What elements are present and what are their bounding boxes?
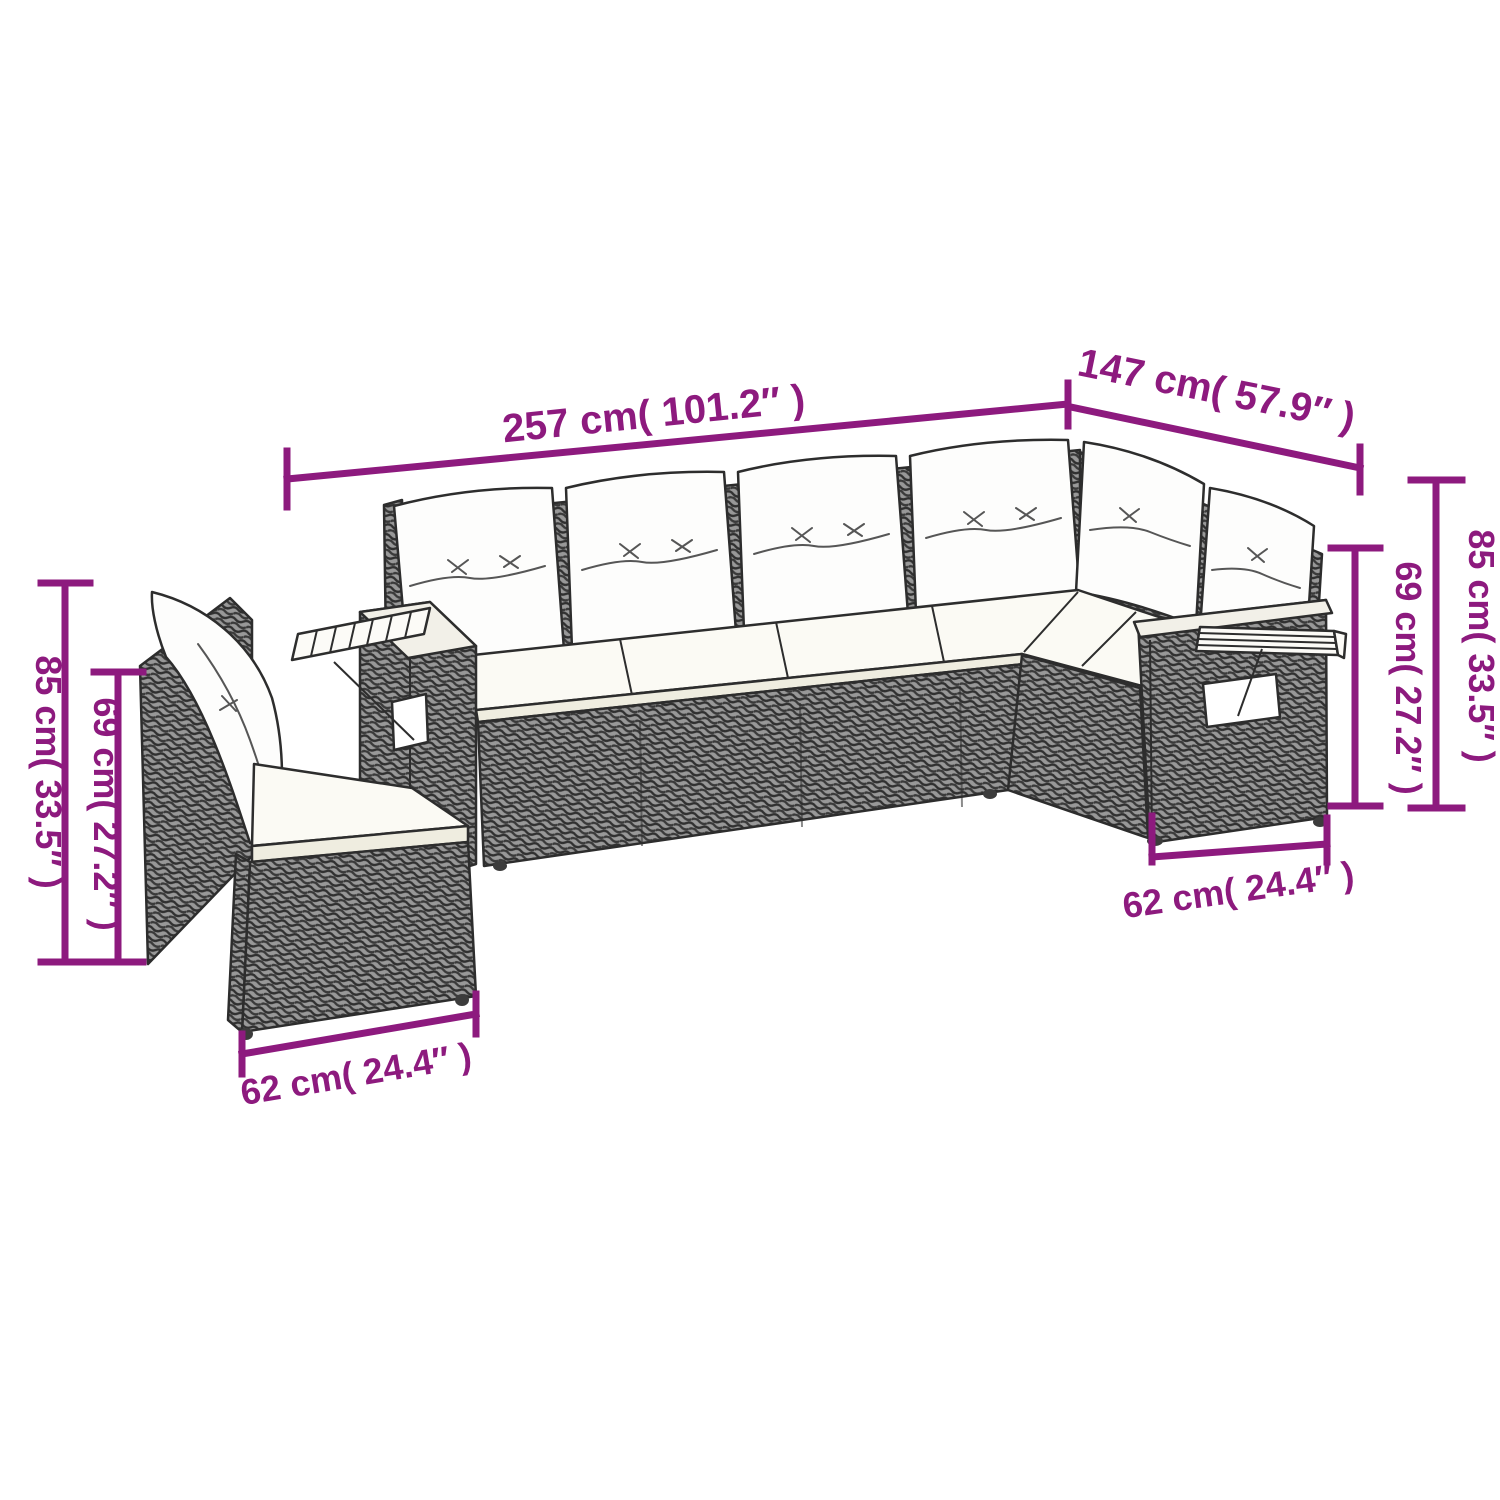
chair-rattan-base bbox=[242, 842, 476, 1032]
dim-right-back-height: 69 cm( 27.2″ ) bbox=[1331, 548, 1429, 806]
sofa-foot bbox=[493, 861, 507, 871]
dim-right-total-height-label: 85 cm( 33.5″ ) bbox=[1461, 529, 1500, 762]
left-arm-cutout bbox=[392, 694, 428, 750]
dim-total-length-label: 257 cm( 101.2″ ) bbox=[500, 377, 807, 451]
back-cushion bbox=[566, 472, 736, 649]
back-cushion bbox=[910, 440, 1080, 613]
dim-left-back-height-label: 69 cm( 27.2″ ) bbox=[86, 697, 127, 930]
dim-left-total-height-label: 85 cm( 33.5″ ) bbox=[28, 655, 69, 888]
diagram-canvas: 257 cm( 101.2″ ) 147 cm( 57.9″ ) 85 cm( … bbox=[0, 0, 1500, 1500]
dim-right-back-height-line bbox=[1331, 548, 1380, 806]
dim-right-module-width: 62 cm( 24.4″ ) bbox=[1120, 816, 1357, 926]
back-cushion bbox=[738, 456, 908, 631]
dim-left-back-height: 69 cm( 27.2″ ) bbox=[86, 672, 143, 962]
dim-left-total-height: 85 cm( 33.5″ ) bbox=[28, 583, 90, 962]
chair-foot bbox=[455, 994, 469, 1006]
dim-right-back-height-label: 69 cm( 27.2″ ) bbox=[1388, 561, 1429, 794]
sofa-foot bbox=[983, 789, 997, 799]
right-arm-cutout bbox=[1203, 674, 1280, 727]
dimension-diagram: 257 cm( 101.2″ ) 147 cm( 57.9″ ) 85 cm( … bbox=[0, 0, 1500, 1500]
dim-total-depth-label: 147 cm( 57.9″ ) bbox=[1074, 341, 1359, 440]
sofa-illustration bbox=[140, 440, 1346, 1040]
